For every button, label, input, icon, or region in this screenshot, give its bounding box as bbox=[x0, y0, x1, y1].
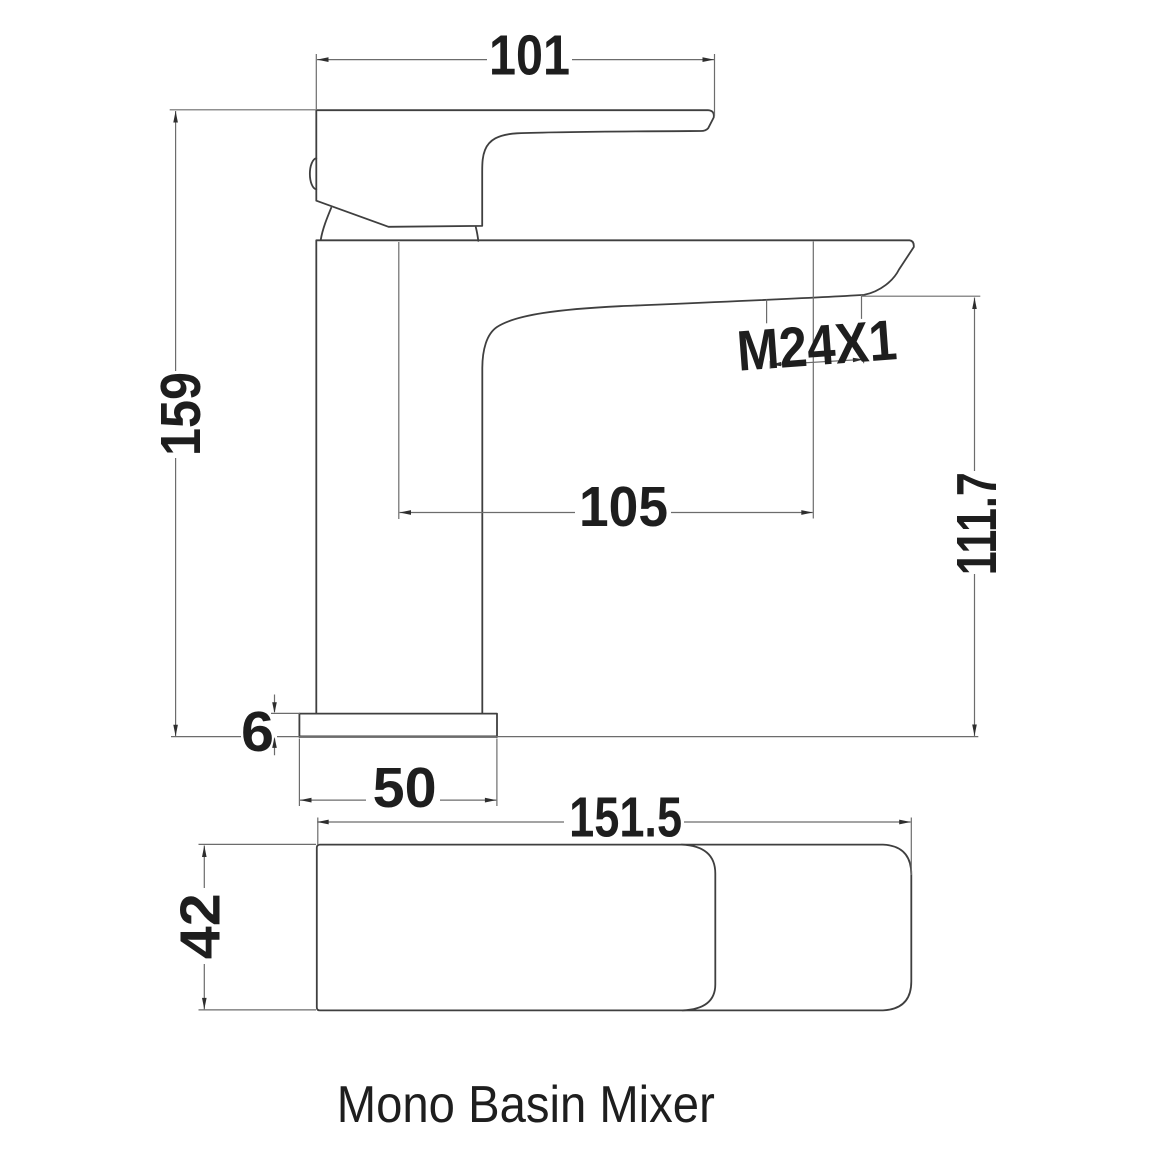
svg-text:101: 101 bbox=[489, 24, 570, 88]
svg-text:105: 105 bbox=[579, 475, 668, 539]
svg-text:50: 50 bbox=[373, 756, 437, 820]
svg-text:151.5: 151.5 bbox=[569, 786, 682, 850]
svg-text:111.7: 111.7 bbox=[945, 472, 1009, 575]
svg-text:M24X1: M24X1 bbox=[735, 308, 899, 384]
svg-text:159: 159 bbox=[149, 372, 213, 456]
svg-text:Mono Basin Mixer: Mono Basin Mixer bbox=[337, 1076, 715, 1134]
svg-text:6: 6 bbox=[241, 700, 274, 764]
svg-text:42: 42 bbox=[169, 893, 233, 959]
